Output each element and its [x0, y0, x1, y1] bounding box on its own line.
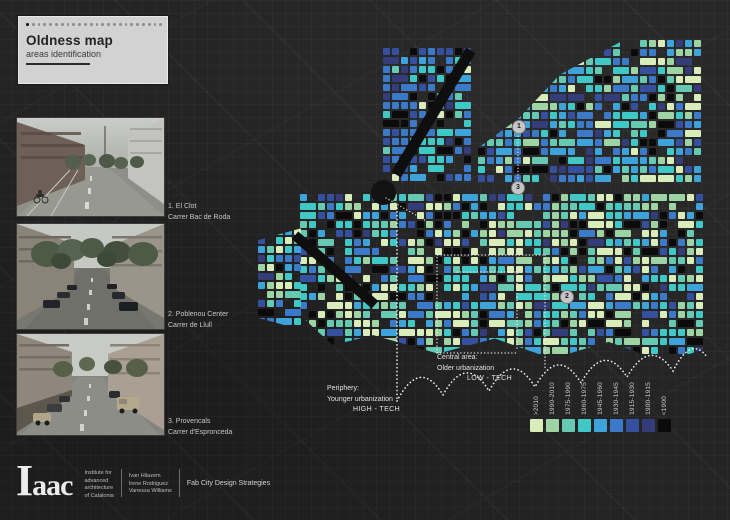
map-block [685, 130, 701, 137]
map-block [631, 166, 638, 173]
map-block [615, 194, 622, 201]
map-block [392, 111, 408, 118]
map-block [401, 57, 408, 64]
map-block [309, 329, 316, 336]
legend-swatch [578, 419, 591, 432]
map-block [480, 293, 487, 300]
map-block [446, 138, 453, 145]
map-block [408, 266, 415, 273]
title-underline [26, 63, 90, 65]
map-block [642, 347, 649, 354]
map-block [354, 347, 361, 354]
map-block [651, 275, 658, 282]
map-block [383, 102, 390, 109]
map-block [327, 320, 334, 327]
map-block [586, 121, 593, 128]
map-block [496, 157, 503, 164]
pagination-dot [90, 23, 93, 26]
map-block [622, 166, 629, 173]
map-block [258, 282, 265, 289]
map-block [577, 58, 584, 65]
map-block [309, 266, 316, 273]
map-block [579, 230, 595, 237]
map-block [552, 293, 559, 300]
map-block [559, 67, 566, 74]
map-block [604, 40, 620, 47]
map-block [487, 139, 494, 146]
map-block [455, 93, 462, 100]
map-block [543, 266, 550, 273]
map-marker-1: 1 [512, 120, 526, 134]
map-block [588, 266, 604, 273]
map-block [507, 248, 514, 255]
map-block [624, 266, 631, 273]
map-block [552, 320, 559, 327]
map-block [561, 212, 568, 219]
map-block [687, 212, 694, 219]
map-block [678, 239, 685, 246]
map-block [462, 311, 469, 318]
map-block [595, 139, 602, 146]
map-block [276, 282, 283, 289]
map-block [455, 129, 471, 136]
photo-caption-el-clot: 1. El Clot Carrer Bac de Roda [168, 202, 230, 224]
map-block [318, 338, 325, 345]
map-block [471, 230, 478, 237]
map-block [595, 157, 611, 164]
map-block [372, 248, 379, 255]
map-block [642, 239, 649, 246]
map-block [444, 329, 451, 336]
map-block [327, 212, 334, 219]
map-block [577, 76, 593, 83]
map-block [631, 130, 638, 137]
map-block [649, 94, 656, 101]
map-block [514, 40, 521, 47]
map-block [660, 212, 667, 219]
map-block [525, 302, 532, 309]
map-block [507, 203, 514, 210]
map-block [478, 157, 485, 164]
map-block [498, 284, 514, 291]
map-block [676, 49, 683, 56]
map-block [309, 293, 316, 300]
map-block [579, 203, 595, 210]
map-block [615, 275, 622, 282]
map-block [658, 103, 665, 110]
map-block [570, 266, 577, 273]
map-block [309, 230, 316, 237]
map-block [462, 284, 469, 291]
map-block [258, 264, 265, 271]
page-title: Oldness map [26, 33, 167, 48]
map-block [496, 103, 503, 110]
map-block [345, 221, 352, 228]
map-block [615, 239, 622, 246]
map-block [696, 266, 703, 273]
map-block [649, 49, 656, 56]
map-block [649, 76, 656, 83]
map-block [444, 275, 451, 282]
map-block [462, 239, 469, 246]
map-block [588, 239, 604, 246]
map-block [410, 102, 417, 109]
map-block [561, 248, 568, 255]
author-name: Irene Rodriguez [129, 481, 172, 489]
map-block [579, 320, 586, 327]
map-block [363, 212, 370, 219]
map-block [613, 49, 620, 56]
map-block [595, 121, 611, 128]
map-block [381, 302, 388, 309]
map-block [408, 257, 424, 264]
map-block [392, 48, 399, 55]
map-block [419, 48, 426, 55]
map-block [478, 94, 485, 101]
map-block [622, 157, 638, 164]
map-block [640, 76, 647, 83]
map-block [276, 264, 283, 271]
map-block [523, 85, 539, 92]
map-block [559, 76, 566, 83]
pagination-dot [61, 23, 64, 26]
map-block [687, 275, 694, 282]
map-block [606, 302, 613, 309]
map-block [496, 76, 512, 83]
map-block [489, 221, 496, 228]
map-block [694, 40, 701, 47]
map-block [471, 329, 478, 336]
map-block [437, 129, 453, 136]
map-block [354, 248, 370, 255]
map-block [595, 148, 602, 155]
map-block [487, 175, 494, 182]
map-block [426, 293, 433, 300]
map-block [543, 230, 550, 237]
map-block [354, 203, 361, 210]
map-block [543, 212, 550, 219]
map-block [696, 221, 703, 228]
map-block [318, 230, 325, 237]
map-block [480, 329, 487, 336]
map-block [597, 230, 604, 237]
map-block [354, 311, 361, 318]
map-block [651, 266, 658, 273]
map-block [318, 329, 325, 336]
pagination-dot [113, 23, 116, 26]
map-block [633, 293, 640, 300]
map-block [579, 266, 586, 273]
legend-item: 1975-1990 [562, 360, 575, 432]
map-block [267, 300, 274, 307]
map-block [559, 130, 566, 137]
map-block [496, 112, 512, 119]
map-block [478, 130, 485, 137]
map-block [363, 230, 370, 237]
map-block [534, 320, 541, 327]
map-block [372, 329, 379, 336]
map-block [489, 293, 496, 300]
map-block [649, 139, 656, 146]
map-block [487, 49, 503, 56]
map-block [383, 156, 390, 163]
map-block [651, 194, 667, 201]
map-block [446, 102, 453, 109]
map-block [294, 246, 301, 253]
map-zone-poblenou-band [300, 194, 706, 362]
map-block [496, 85, 503, 92]
map-block [640, 58, 656, 65]
photo-caption-line: 2. Poblenou Center [168, 310, 228, 321]
map-block [568, 103, 575, 110]
map-block [694, 148, 701, 155]
map-block [633, 302, 640, 309]
map-block [505, 67, 512, 74]
map-block [667, 148, 674, 155]
institute-line: Institute for [84, 470, 113, 478]
map-block [408, 194, 424, 201]
map-block [694, 166, 701, 173]
map-block [561, 203, 568, 210]
map-block [309, 320, 316, 327]
map-block [606, 257, 613, 264]
map-block [642, 302, 649, 309]
map-block [541, 76, 548, 83]
map-block [687, 338, 703, 345]
map-block [624, 275, 631, 282]
legend-label: 1915-1930 [629, 382, 636, 415]
map-block [550, 148, 566, 155]
map-block [640, 40, 647, 47]
map-block [694, 49, 701, 56]
map-block [258, 309, 274, 316]
map-block [480, 230, 487, 237]
map-block [615, 347, 622, 354]
map-block [633, 194, 640, 201]
map-block [658, 157, 665, 164]
map-block [345, 302, 352, 309]
map-block [428, 66, 435, 73]
map-block [453, 194, 460, 201]
map-block [532, 175, 539, 182]
map-block [532, 103, 548, 110]
map-block [552, 230, 559, 237]
map-block [294, 318, 301, 325]
legend-swatch [658, 419, 671, 432]
map-block [392, 93, 408, 100]
map-block [437, 66, 444, 73]
map-block [577, 121, 584, 128]
map-block [588, 212, 604, 219]
map-block [318, 347, 325, 354]
map-block [363, 329, 370, 336]
map-block [660, 239, 667, 246]
map-block [615, 293, 631, 300]
map-block [478, 121, 494, 128]
map-block [354, 239, 361, 246]
map-zone-upper-right [478, 40, 706, 190]
map-block [631, 85, 638, 92]
map-block [464, 138, 471, 145]
map-block [669, 212, 676, 219]
map-block [631, 148, 638, 155]
map-block [462, 302, 469, 309]
map-block [489, 212, 496, 219]
map-block [417, 212, 424, 219]
map-block [678, 221, 694, 228]
map-block [462, 221, 469, 228]
map-block [516, 329, 523, 336]
map-block [354, 221, 361, 228]
map-block [399, 284, 406, 291]
map-block [419, 84, 426, 91]
pagination-dot [43, 23, 46, 26]
map-block [390, 203, 397, 210]
map-block [294, 300, 301, 307]
map-block [696, 212, 703, 219]
map-block [410, 120, 417, 127]
map-block [390, 302, 397, 309]
map-block [309, 311, 316, 318]
map-block [309, 338, 316, 345]
map-block [507, 212, 514, 219]
map-block [640, 112, 647, 119]
map-block [570, 311, 577, 318]
map-block [363, 194, 370, 201]
institute-line: advanced [84, 478, 113, 486]
map-block [419, 66, 426, 73]
map-block [471, 203, 478, 210]
map-block [435, 302, 442, 309]
legend-item: 1945-1960 [594, 360, 607, 432]
map-block [631, 175, 638, 182]
author-name: Vanessa Williams [129, 488, 172, 496]
map-block [552, 257, 559, 264]
map-block [667, 85, 674, 92]
photo-caption-line: 1. El Clot [168, 202, 230, 213]
map-block [633, 203, 640, 210]
map-block [383, 111, 390, 118]
map-block [525, 311, 532, 318]
legend-swatch [530, 419, 543, 432]
map-block [258, 228, 274, 235]
map-block [419, 57, 426, 64]
pagination-dot [107, 23, 110, 26]
map-block [613, 67, 629, 74]
map-block [428, 84, 435, 91]
map-block [534, 266, 541, 273]
map-block [507, 338, 514, 345]
map-block [525, 275, 532, 282]
map-block [327, 347, 343, 354]
map-block [550, 175, 557, 182]
map-block [505, 103, 512, 110]
map-block [372, 320, 379, 327]
map-block [696, 257, 703, 264]
map-block [579, 248, 586, 255]
map-block [383, 165, 390, 172]
map-block [687, 284, 703, 291]
map-block [525, 338, 532, 345]
map-block [561, 311, 568, 318]
map-block [516, 293, 532, 300]
map-block [399, 239, 406, 246]
map-block [390, 230, 397, 237]
map-block [514, 85, 521, 92]
map-block [417, 266, 424, 273]
map-block [550, 67, 557, 74]
map-block [318, 239, 334, 246]
map-block [318, 203, 325, 210]
map-block [676, 94, 683, 101]
map-block [642, 329, 649, 336]
map-block [597, 311, 604, 318]
map-block [453, 275, 460, 282]
map-block [694, 121, 701, 128]
oldness-legend: >20101990-20101975-19901960-19751945-196… [530, 360, 680, 432]
map-block [660, 284, 667, 291]
map-block [381, 329, 397, 336]
map-block [570, 347, 577, 354]
map-block [559, 40, 566, 47]
map-block [559, 112, 566, 119]
map-block [505, 121, 512, 128]
map-block [669, 248, 676, 255]
map-block [487, 130, 494, 137]
map-block [453, 329, 460, 336]
map-block [667, 94, 674, 101]
map-block [487, 94, 494, 101]
map-block [678, 329, 685, 336]
author-name: Ivan Hilazem [129, 473, 172, 481]
map-block [658, 94, 665, 101]
map-block [327, 221, 334, 228]
map-block [568, 85, 575, 92]
map-block [613, 85, 629, 92]
map-block [435, 230, 442, 237]
map-block [550, 85, 557, 92]
map-block [568, 40, 584, 47]
map-block [399, 212, 406, 219]
map-block [678, 257, 685, 264]
map-block [586, 103, 593, 110]
map-block [687, 293, 694, 300]
map-block [577, 130, 593, 137]
map-block [381, 230, 388, 237]
map-block [640, 130, 647, 137]
map-block [392, 75, 408, 82]
map-block [678, 302, 685, 309]
map-block [390, 212, 397, 219]
map-block [462, 230, 469, 237]
map-block [345, 347, 352, 354]
map-block [687, 311, 694, 318]
map-block [631, 94, 638, 101]
map-block [399, 311, 406, 318]
map-block [408, 347, 424, 354]
map-block [649, 157, 656, 164]
map-block [514, 76, 521, 83]
map-block [354, 338, 361, 345]
map-block [455, 174, 462, 181]
map-block [676, 121, 683, 128]
map-block [480, 266, 487, 273]
photo-caption-line: 3. Provencals [168, 417, 232, 428]
map-block [300, 347, 316, 354]
map-block [597, 347, 604, 354]
map-block [658, 58, 665, 65]
map-block [561, 194, 568, 201]
